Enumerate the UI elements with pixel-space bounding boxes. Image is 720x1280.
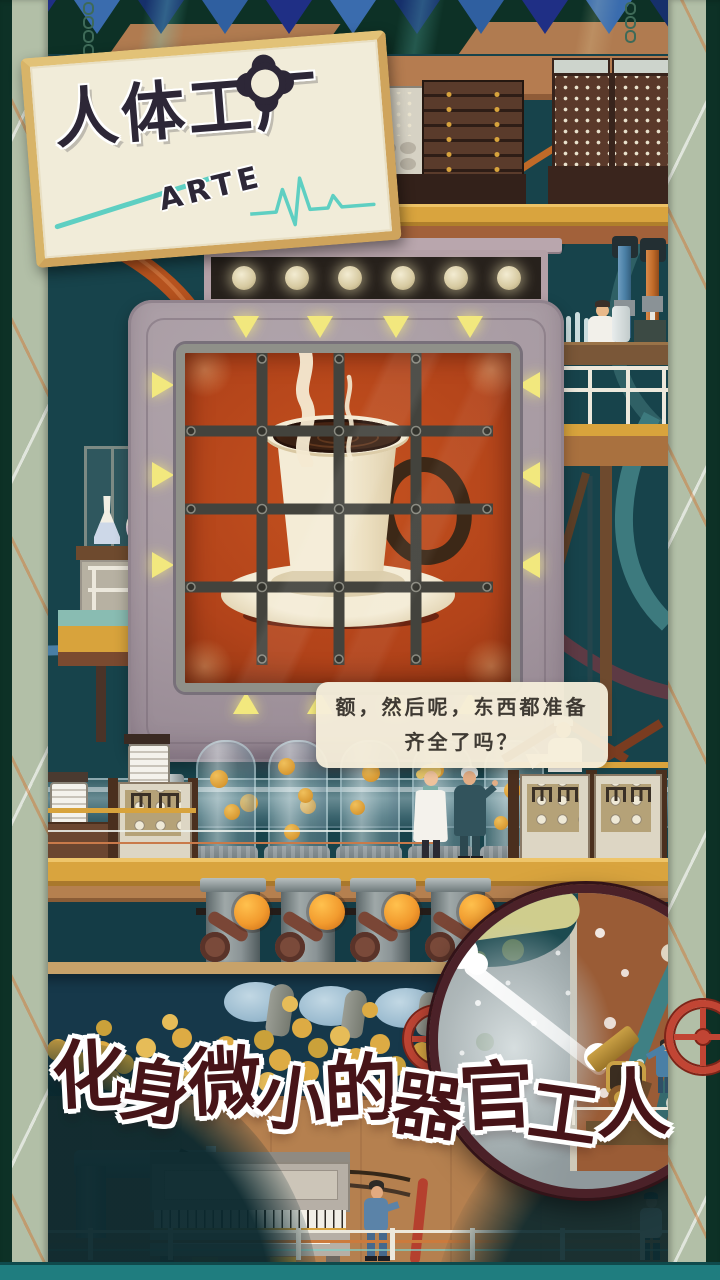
- pipe-coupling: [642, 296, 663, 312]
- worker-shoe: [365, 1256, 377, 1261]
- switch-fork-icon: [159, 793, 179, 808]
- glass-cylinder: [196, 740, 256, 854]
- indicator-light-icon: [232, 266, 256, 290]
- organ-ball: [278, 758, 295, 775]
- organ-ball: [298, 788, 313, 803]
- switch-fork-icon: [532, 787, 552, 802]
- switch-fork-icon: [131, 793, 151, 808]
- switchboard-cabinet: [612, 73, 674, 169]
- man-jacket: [454, 785, 486, 836]
- railing-bar: [548, 388, 668, 392]
- pipe-flange: [350, 878, 416, 892]
- railing-post: [390, 1228, 395, 1260]
- triangle-light-icon: [518, 552, 540, 578]
- railing-post: [588, 366, 592, 424]
- wheel-hub: [696, 1030, 710, 1044]
- switchboard-cabinet: [552, 73, 612, 169]
- railing-post: [662, 366, 666, 424]
- coil-cap: [46, 772, 88, 782]
- platform-slab-top: [552, 424, 668, 436]
- switch-fork-icon: [606, 787, 626, 802]
- triangle-light-icon: [152, 552, 174, 578]
- valve-disc: [275, 932, 305, 962]
- control-panel: [594, 774, 662, 870]
- triangle-light-icon: [518, 462, 540, 488]
- worker-leg: [379, 1232, 387, 1258]
- worker-shoe: [378, 1256, 390, 1261]
- coil-cylinder: [50, 782, 88, 826]
- woman-leg: [422, 840, 429, 860]
- woman-leg: [433, 840, 440, 860]
- lab-tube: [575, 312, 580, 342]
- railing-post: [626, 366, 630, 424]
- machine-window: [176, 344, 520, 692]
- dialogue-line: 额，然后呢，东西都准备: [328, 692, 596, 723]
- triangle-light-icon: [383, 316, 409, 338]
- indicator-light-icon: [497, 266, 521, 290]
- worker-leg: [367, 1232, 375, 1258]
- pipe-flange: [425, 878, 491, 892]
- dialogue-bubble[interactable]: 额，然后呢，东西都准备 齐全了吗？: [316, 682, 608, 768]
- triangle-light-icon: [457, 316, 483, 338]
- white-cylinder: [612, 306, 630, 342]
- scientist-coat: [588, 316, 615, 343]
- indicator-light-icon: [391, 266, 415, 290]
- organ-ball: [284, 824, 300, 840]
- glass-glare: [185, 353, 511, 683]
- machine-light-bar: [204, 250, 548, 306]
- wire-orange: [44, 842, 436, 844]
- platform-slab: [552, 436, 668, 466]
- man-head: [463, 771, 476, 785]
- triangle-light-icon: [233, 692, 259, 714]
- coil-cap: [124, 734, 170, 744]
- man-leg: [472, 836, 480, 858]
- coil-cylinder: [128, 744, 170, 786]
- tank-ledge: [0, 962, 470, 974]
- dark-box: [634, 320, 666, 342]
- panel-post: [108, 778, 118, 866]
- switch-fork-icon: [631, 787, 651, 802]
- mini-rail: [44, 808, 196, 813]
- man-leg: [460, 836, 468, 858]
- triangle-light-icon: [152, 462, 174, 488]
- valve-disc: [350, 932, 380, 962]
- indicator-light-icon: [338, 266, 362, 290]
- railing-bar: [548, 366, 668, 370]
- man-hand: [492, 780, 498, 786]
- indicator-light-icon: [444, 266, 468, 290]
- triangle-light-icon: [233, 316, 259, 338]
- valve-ball-icon[interactable]: [234, 894, 270, 930]
- wire-white: [44, 830, 436, 832]
- organ-ball: [210, 770, 228, 788]
- game-screenshot: 额，然后呢，东西都准备 齐全了吗？ 化身微小的器官工人: [0, 0, 720, 1280]
- woman-head: [424, 771, 438, 786]
- drawer-cabinet: [422, 80, 524, 178]
- lab-tube: [566, 316, 571, 342]
- control-panel: [520, 774, 590, 870]
- organ-ball: [224, 804, 240, 820]
- decorative-border-bottom: [0, 1262, 720, 1280]
- control-panel: [118, 782, 192, 868]
- dial-plate: [601, 784, 651, 832]
- switch-fork-icon: [558, 787, 578, 802]
- triangle-light-icon: [518, 372, 540, 398]
- gauge-dial: [400, 142, 416, 154]
- worker-body: [364, 1198, 388, 1232]
- woman-lab-coat: [413, 790, 448, 842]
- organ-ball: [494, 816, 508, 830]
- triangle-light-icon: [307, 316, 333, 338]
- title-card: 人体工厂 ARTE: [20, 30, 401, 268]
- dial-plate: [527, 784, 579, 832]
- ekg-icon: [247, 164, 377, 234]
- valve-ball-icon[interactable]: [384, 894, 420, 930]
- gauge-dial: [400, 158, 416, 170]
- platform-leg: [96, 666, 106, 742]
- organ-ball: [350, 800, 365, 815]
- dialogue-line: 齐全了吗？: [328, 727, 596, 758]
- platform-desk: [556, 342, 668, 365]
- switchboard-base: [548, 166, 672, 204]
- pipe-flange: [200, 878, 266, 892]
- pipe-flange: [275, 878, 341, 892]
- valve-ball-icon[interactable]: [309, 894, 345, 930]
- triangle-light-icon: [152, 372, 174, 398]
- panel-post: [508, 770, 519, 868]
- indicator-light-icon: [285, 266, 309, 290]
- valve-disc: [200, 932, 230, 962]
- scientist-hair: [595, 300, 610, 307]
